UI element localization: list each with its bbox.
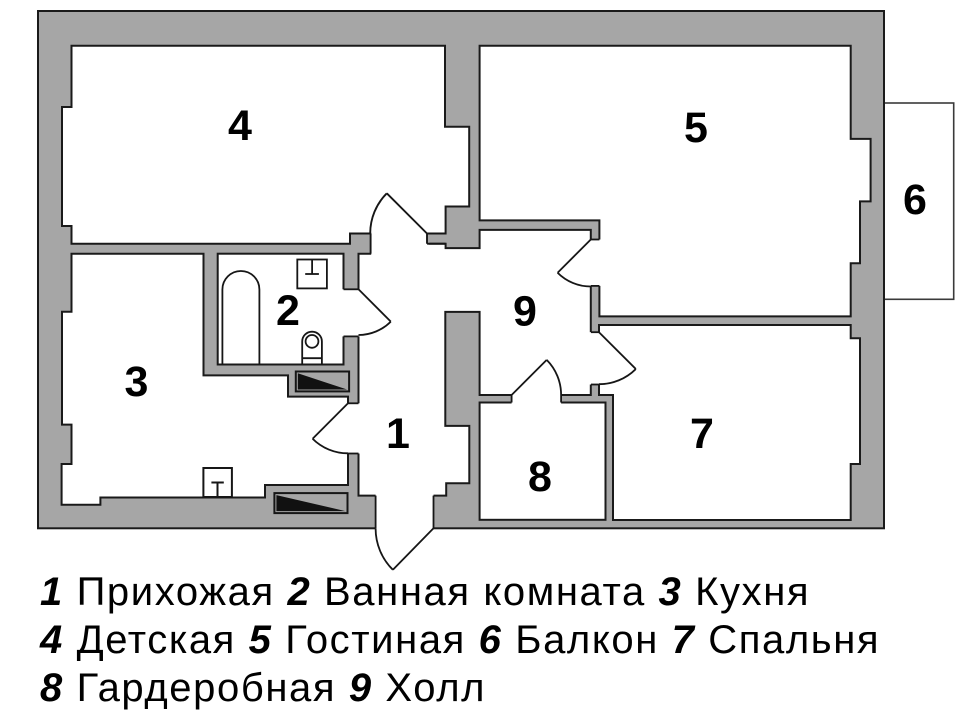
svg-text:9: 9: [513, 288, 537, 336]
svg-text:6: 6: [903, 176, 927, 224]
svg-text:4: 4: [228, 102, 252, 150]
svg-text:3: 3: [125, 358, 149, 406]
svg-text:8 Гардеробная 9 Холл: 8 Гардеробная 9 Холл: [40, 666, 486, 710]
svg-text:5: 5: [684, 104, 708, 152]
svg-text:2: 2: [276, 287, 300, 335]
svg-text:8: 8: [528, 453, 552, 501]
svg-text:1 Прихожая 2 Ванная комната 3: 1 Прихожая 2 Ванная комната 3 Кухня: [40, 570, 810, 614]
svg-text:1: 1: [386, 410, 410, 458]
svg-text:7: 7: [690, 410, 714, 458]
svg-text:4 Детская 5 Гостиная 6 Балкон: 4 Детская 5 Гостиная 6 Балкон 7 Спальня: [39, 618, 880, 662]
